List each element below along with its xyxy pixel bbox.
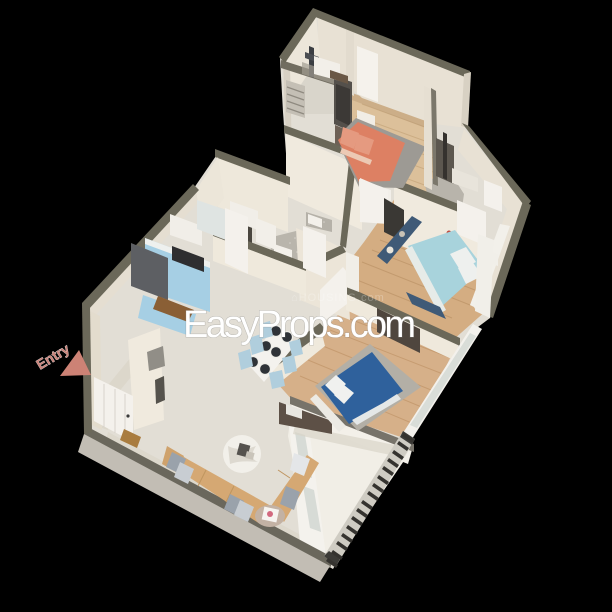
svg-text:EasyProps.com: EasyProps.com <box>183 304 416 346</box>
svg-text:⌂HOUSING.com: ⌂HOUSING.com <box>291 292 385 304</box>
